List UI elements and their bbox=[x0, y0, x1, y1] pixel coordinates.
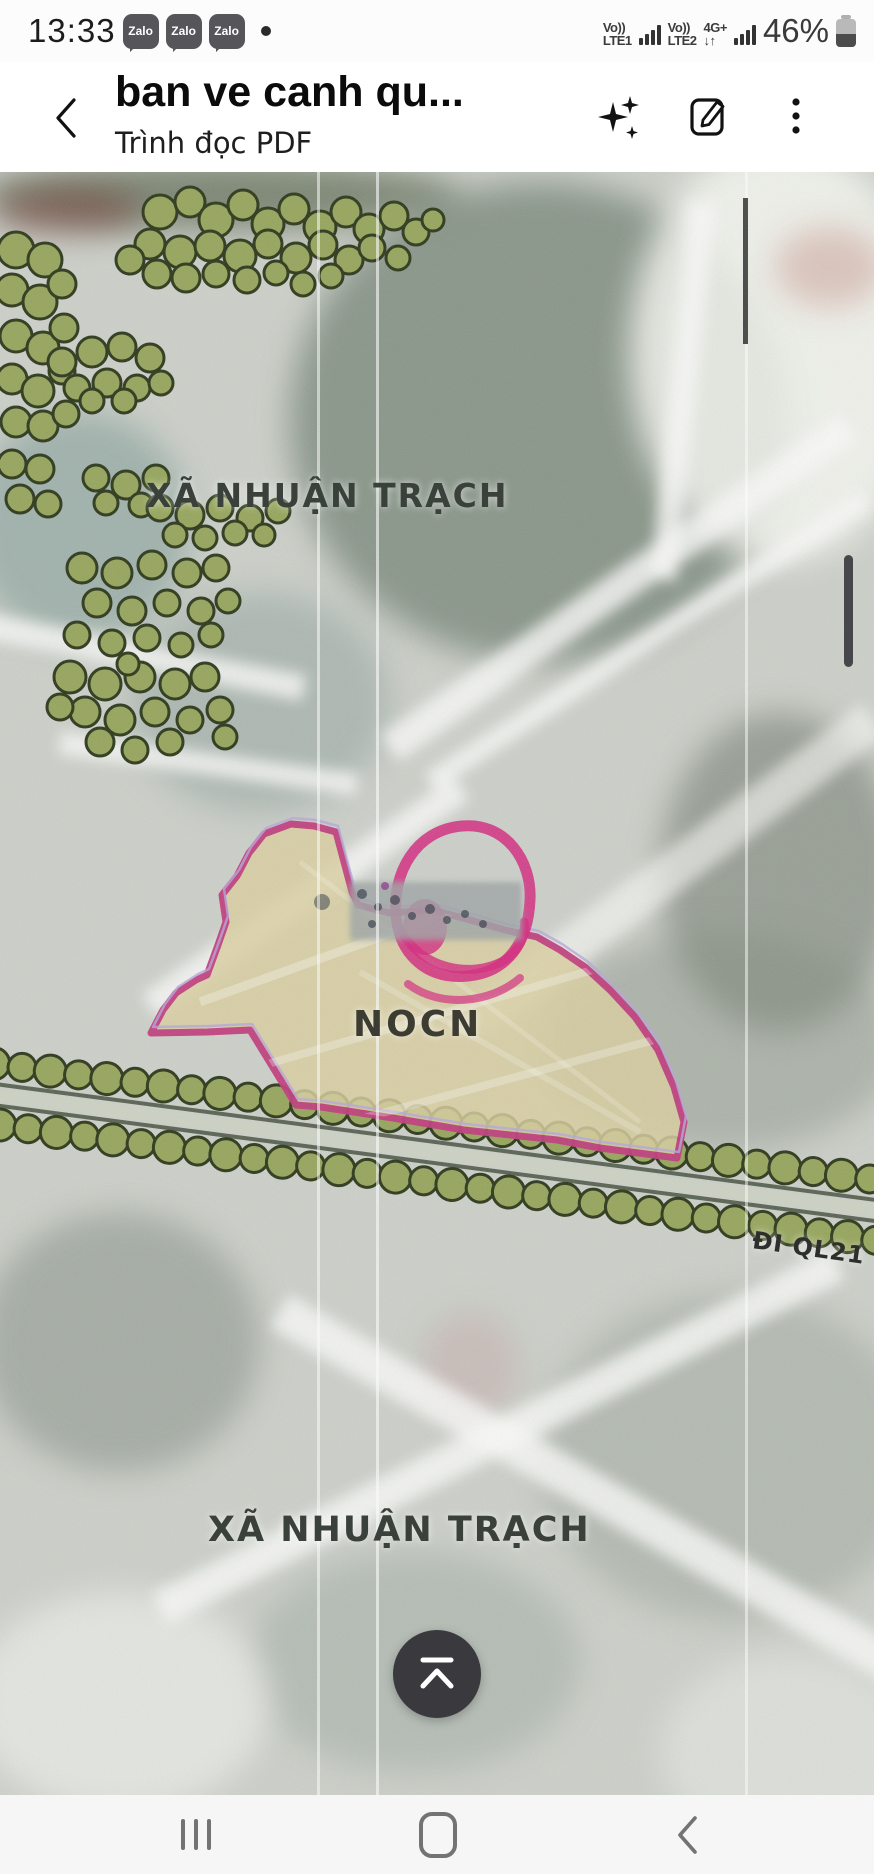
recents-icon bbox=[181, 1819, 211, 1850]
back-button[interactable] bbox=[46, 94, 90, 142]
recents-button[interactable] bbox=[151, 1795, 241, 1874]
sim2-volte-indicator: Vo))LTE2 bbox=[668, 21, 697, 50]
area-code-label: NOCN bbox=[353, 1004, 482, 1045]
commune-label: XÃ NHUẬN TRẠCH bbox=[208, 1510, 591, 1550]
edit-pencil-icon bbox=[684, 90, 736, 142]
home-button[interactable] bbox=[393, 1795, 483, 1874]
battery-icon bbox=[836, 19, 856, 47]
annotate-button[interactable] bbox=[684, 90, 736, 142]
home-icon bbox=[419, 1812, 457, 1858]
scrollbar-thumb[interactable] bbox=[844, 555, 853, 667]
sparkles-icon bbox=[592, 90, 644, 142]
commune-label: XÃ NHUẬN TRẠCH bbox=[146, 476, 508, 515]
clock: 13:33 bbox=[28, 12, 116, 50]
chevron-left-icon bbox=[46, 94, 90, 142]
signal-bars-icon bbox=[639, 25, 661, 50]
scroll-to-top-button[interactable] bbox=[393, 1630, 481, 1718]
phone-screen: 13:33 Zalo Zalo Zalo Vo))LTE1 Vo))LTE2 4… bbox=[0, 0, 874, 1874]
pdf-reader-toolbar: ban ve canh qu... Trình đọc PDF bbox=[0, 62, 874, 172]
document-title: ban ve canh qu... bbox=[115, 68, 595, 117]
battery-percent: 46% bbox=[763, 12, 829, 50]
pdf-map-page[interactable]: XÃ NHUẬN TRẠCH NOCN ĐI QL21 XÃ NHUẬN TRẠ… bbox=[0, 172, 874, 1795]
back-chevron-icon bbox=[674, 1814, 700, 1856]
app-name: Trình đọc PDF bbox=[115, 126, 595, 160]
zalo-notification-icon: Zalo bbox=[209, 14, 245, 49]
zalo-notification-icon: Zalo bbox=[166, 14, 202, 49]
status-bar: 13:33 Zalo Zalo Zalo Vo))LTE1 Vo))LTE2 4… bbox=[0, 0, 874, 62]
zalo-notification-icon: Zalo bbox=[123, 14, 159, 49]
back-nav-button[interactable] bbox=[642, 1795, 732, 1874]
android-nav-bar bbox=[0, 1795, 874, 1874]
status-indicators: Vo))LTE1 Vo))LTE2 4G+↓↑ 46% bbox=[603, 12, 856, 50]
network-speed-indicator: 4G+↓↑ bbox=[704, 21, 727, 50]
more-options-button[interactable] bbox=[770, 90, 822, 142]
more-notifications-dot bbox=[261, 26, 271, 36]
photo-grain bbox=[0, 172, 874, 1795]
signal-bars-icon bbox=[734, 25, 756, 50]
map-artwork bbox=[0, 172, 874, 1795]
kebab-menu-icon bbox=[770, 90, 822, 142]
sim1-volte-indicator: Vo))LTE1 bbox=[603, 21, 632, 50]
ai-assist-button[interactable] bbox=[592, 90, 644, 142]
scroll-to-top-icon bbox=[414, 1654, 460, 1694]
document-titles: ban ve canh qu... Trình đọc PDF bbox=[115, 68, 595, 160]
